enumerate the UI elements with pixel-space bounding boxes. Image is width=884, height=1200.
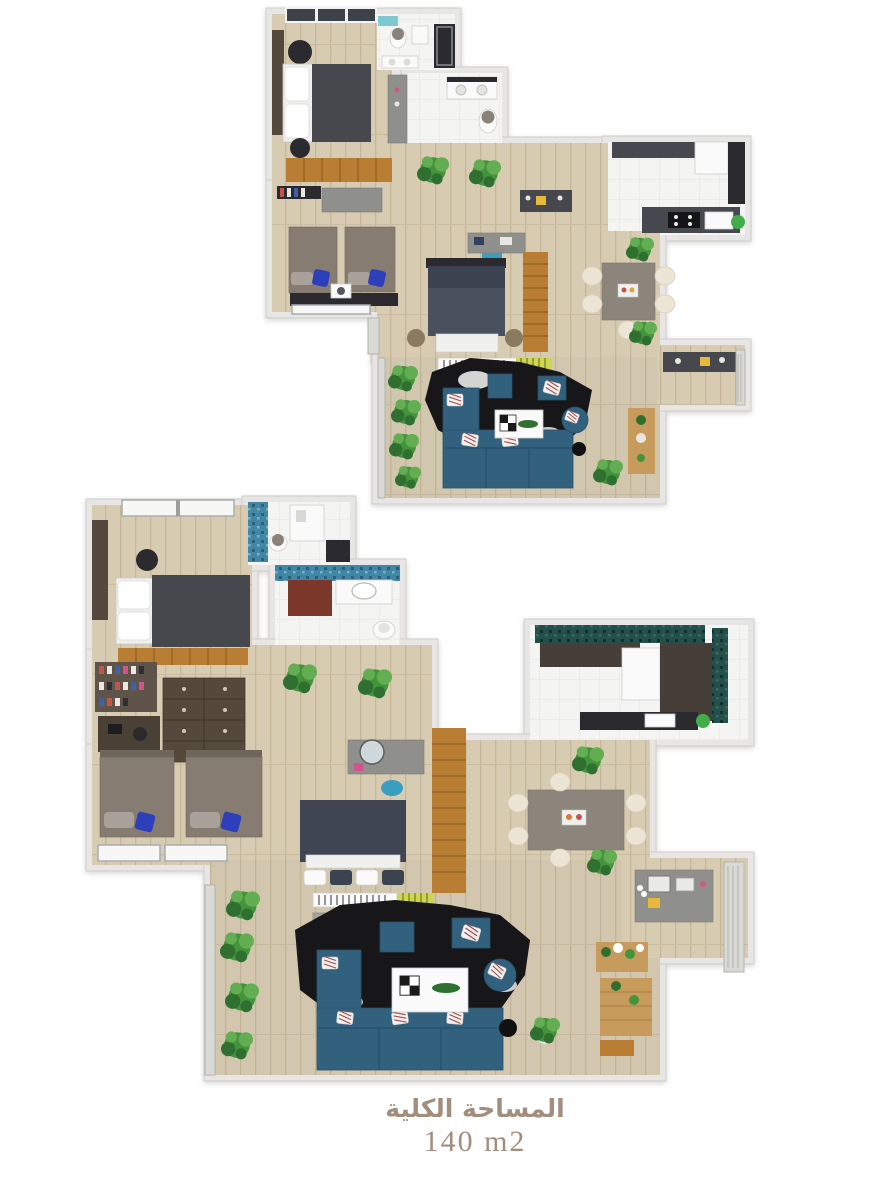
console-table: [600, 978, 652, 1036]
bath-cabinet: [288, 580, 332, 616]
upper-floor-plan: [266, 8, 751, 504]
headboard-cabinet: [322, 188, 382, 212]
balcony-railing: [724, 862, 744, 972]
pouf: [572, 442, 586, 456]
lower-floor-plan: [86, 496, 754, 1081]
desk: [635, 870, 713, 922]
wardrobe: [523, 252, 548, 352]
kitchen-counter: [612, 142, 695, 158]
shower-cabinet: [290, 505, 324, 541]
double-bed: [428, 266, 505, 288]
double-bed: [300, 800, 406, 862]
wardrobe: [92, 520, 108, 620]
shoe-bench: [600, 1040, 634, 1056]
caption: المساحة الكلية 140 m2: [33, 1094, 884, 1159]
pouf: [407, 329, 425, 347]
washer: [326, 540, 350, 562]
tall-wardrobe: [432, 728, 466, 893]
small-balcony: [368, 318, 379, 354]
kitchen-island: [580, 712, 698, 730]
chair: [381, 780, 403, 796]
plant-pot: [731, 215, 745, 229]
total-area-label-ar: المساحة الكلية: [33, 1094, 884, 1123]
kitchen-counter: [660, 643, 712, 721]
pouf: [505, 329, 523, 347]
vanity-desk: [98, 716, 160, 752]
tall-cabinets: [728, 142, 745, 204]
side-table: [290, 138, 310, 158]
window: [286, 8, 376, 22]
vanity: [382, 56, 418, 68]
floor-plan-page: المساحة الكلية 140 m2: [0, 0, 884, 1200]
fridge: [622, 648, 660, 700]
balcony-railing: [205, 885, 215, 1075]
plant-pot: [696, 714, 710, 728]
bath-cabinet: [388, 75, 407, 143]
chair: [136, 549, 158, 571]
ottoman: [488, 374, 512, 398]
total-area-value: 140 m2: [33, 1125, 884, 1159]
pouf: [499, 1019, 517, 1037]
kitchen-sink: [705, 212, 733, 229]
kitchen-sink: [645, 714, 675, 727]
floor-plans-illustration: [0, 0, 884, 1200]
cooktop: [668, 212, 700, 228]
armchair: [288, 40, 312, 64]
sink: [412, 26, 428, 44]
balcony-railing: [378, 358, 385, 498]
ottoman: [380, 922, 414, 952]
fridge: [695, 142, 728, 174]
round-mirror: [360, 740, 384, 764]
stool: [133, 727, 147, 741]
